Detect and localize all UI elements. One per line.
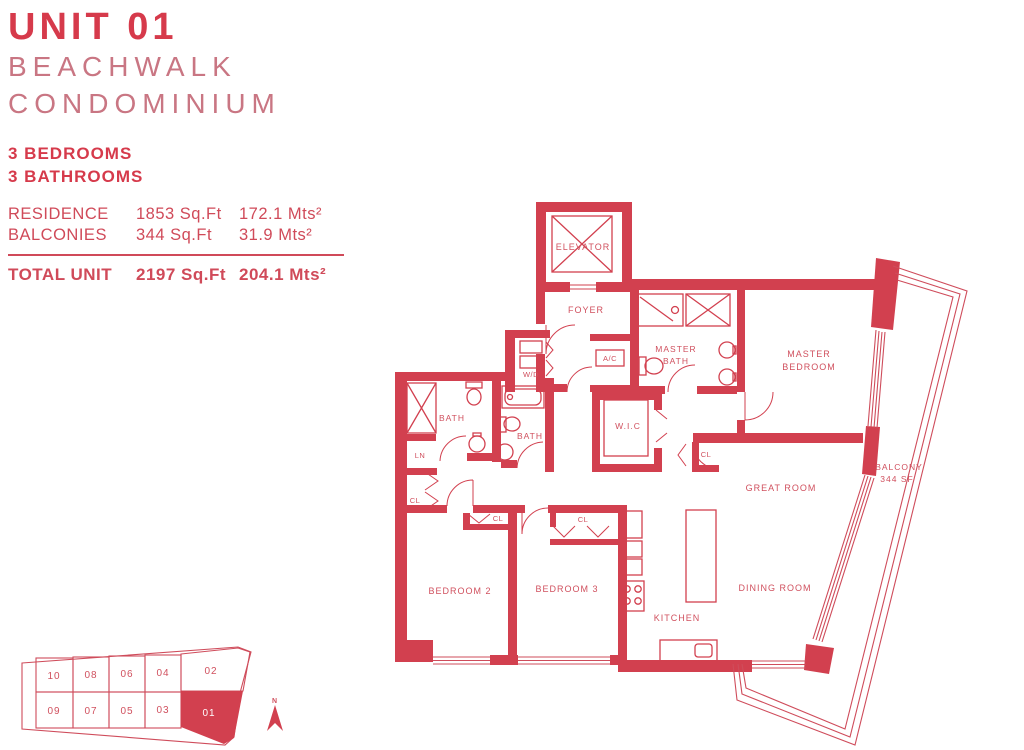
- residence-sqft: 1853 Sq.Ft: [136, 205, 239, 224]
- north-label: N: [272, 698, 278, 705]
- elevator-cab-icon: [552, 216, 612, 289]
- floor-plan: ELEVATOR FOYER W/D A/C MASTER BATH MASTE…: [390, 190, 1024, 750]
- table-row-total: TOTAL UNIT 2197 Sq.Ft 204.1 Mts²: [8, 264, 348, 285]
- keyplan-unit-05: 05: [120, 706, 133, 717]
- balcony-label-line1: BALCONY: [875, 462, 923, 472]
- bath2-label: BATH: [517, 431, 543, 441]
- master-sinks-icon: [719, 342, 736, 385]
- balconies-label: BALCONIES: [8, 226, 136, 245]
- keyplan-unit-09: 09: [47, 706, 60, 717]
- kitchen-label: KITCHEN: [654, 613, 701, 623]
- table-row-residence: RESIDENCE 1853 Sq.Ft 172.1 Mts²: [8, 204, 348, 225]
- bedroom3-label: BEDROOM 3: [535, 584, 598, 594]
- keyplan-unit-01: 01: [202, 708, 215, 719]
- page-title: UNIT 01: [8, 6, 177, 49]
- bedrooms-count: 3 BEDROOMS: [8, 142, 143, 165]
- master-bath-label-line2: BATH: [663, 356, 689, 366]
- master-bath-label-line1: MASTER: [655, 344, 696, 354]
- elevator-label: ELEVATOR: [556, 242, 611, 252]
- keyplan-unit-08: 08: [84, 670, 97, 681]
- bath1-shower-icon: [407, 383, 436, 433]
- closet-label-master: CL: [701, 450, 712, 459]
- bath1-toilet-icon: [466, 382, 482, 405]
- closet-label-bedroom2: CL: [493, 514, 504, 523]
- master-toilet-icon: [639, 357, 663, 375]
- keyplan-unit-07: 07: [84, 706, 97, 717]
- keyplan-unit-04: 04: [156, 668, 169, 679]
- keyplan-unit-02: 02: [204, 666, 217, 677]
- master-bathtub-icon: [637, 294, 683, 326]
- building-name-line2: CONDOMINIUM: [8, 85, 281, 122]
- dining-room-label: DINING ROOM: [739, 583, 812, 593]
- bathrooms-count: 3 BATHROOMS: [8, 165, 143, 188]
- linen-label: LN: [415, 451, 426, 460]
- ac-label: A/C: [603, 354, 617, 363]
- unit-specs: 3 BEDROOMS 3 BATHROOMS: [8, 142, 143, 188]
- area-table: RESIDENCE 1853 Sq.Ft 172.1 Mts² BALCONIE…: [8, 204, 348, 285]
- total-sqft: 2197 Sq.Ft: [136, 265, 239, 285]
- closet-label-hall: CL: [410, 496, 421, 505]
- great-room-label: GREAT ROOM: [746, 483, 817, 493]
- wd-label: W/D: [523, 370, 539, 379]
- keyplan-cells: [36, 648, 250, 744]
- master-shower-icon: [686, 294, 730, 326]
- kitchen-island: [686, 510, 716, 602]
- master-bedroom-label-line1: MASTER: [787, 349, 831, 359]
- keyplan-unit-03: 03: [156, 705, 169, 716]
- total-mts: 204.1 Mts²: [239, 265, 348, 285]
- total-label: TOTAL UNIT: [8, 265, 136, 285]
- keyplan-unit-06: 06: [120, 669, 133, 680]
- kitchen-counter: [660, 640, 717, 661]
- keyplan-unit-10: 10: [47, 671, 60, 682]
- bath2-tub-icon: [502, 386, 544, 408]
- table-divider: [8, 254, 344, 256]
- balcony-label-line2: 344 SF: [880, 474, 913, 484]
- master-bedroom-label-line2: BEDROOM: [782, 362, 836, 372]
- bath1-label: BATH: [439, 413, 465, 423]
- table-row-balconies: BALCONIES 344 Sq.Ft 31.9 Mts²: [8, 225, 348, 246]
- residence-mts: 172.1 Mts²: [239, 205, 348, 224]
- balcony-railing: [733, 266, 967, 745]
- balconies-mts: 31.9 Mts²: [239, 226, 348, 245]
- bath1-sink-icon: [469, 433, 485, 452]
- building-name-line1: BEACHWALK: [8, 48, 281, 85]
- foyer-label: FOYER: [568, 305, 604, 315]
- balconies-sqft: 344 Sq.Ft: [136, 226, 239, 245]
- residence-label: RESIDENCE: [8, 205, 136, 224]
- balcony-sliding-doors: [813, 330, 885, 642]
- building-name: BEACHWALK CONDOMINIUM: [8, 48, 281, 122]
- north-arrow-icon: N: [267, 698, 283, 731]
- closet-label-bedroom3: CL: [578, 515, 589, 524]
- key-plan: 10 08 06 04 02 09 07 05 03 01 N: [12, 633, 312, 750]
- wic-label: W.I.C: [615, 421, 641, 431]
- bedroom2-label: BEDROOM 2: [428, 586, 491, 596]
- bath2-toilet-icon: [500, 417, 520, 432]
